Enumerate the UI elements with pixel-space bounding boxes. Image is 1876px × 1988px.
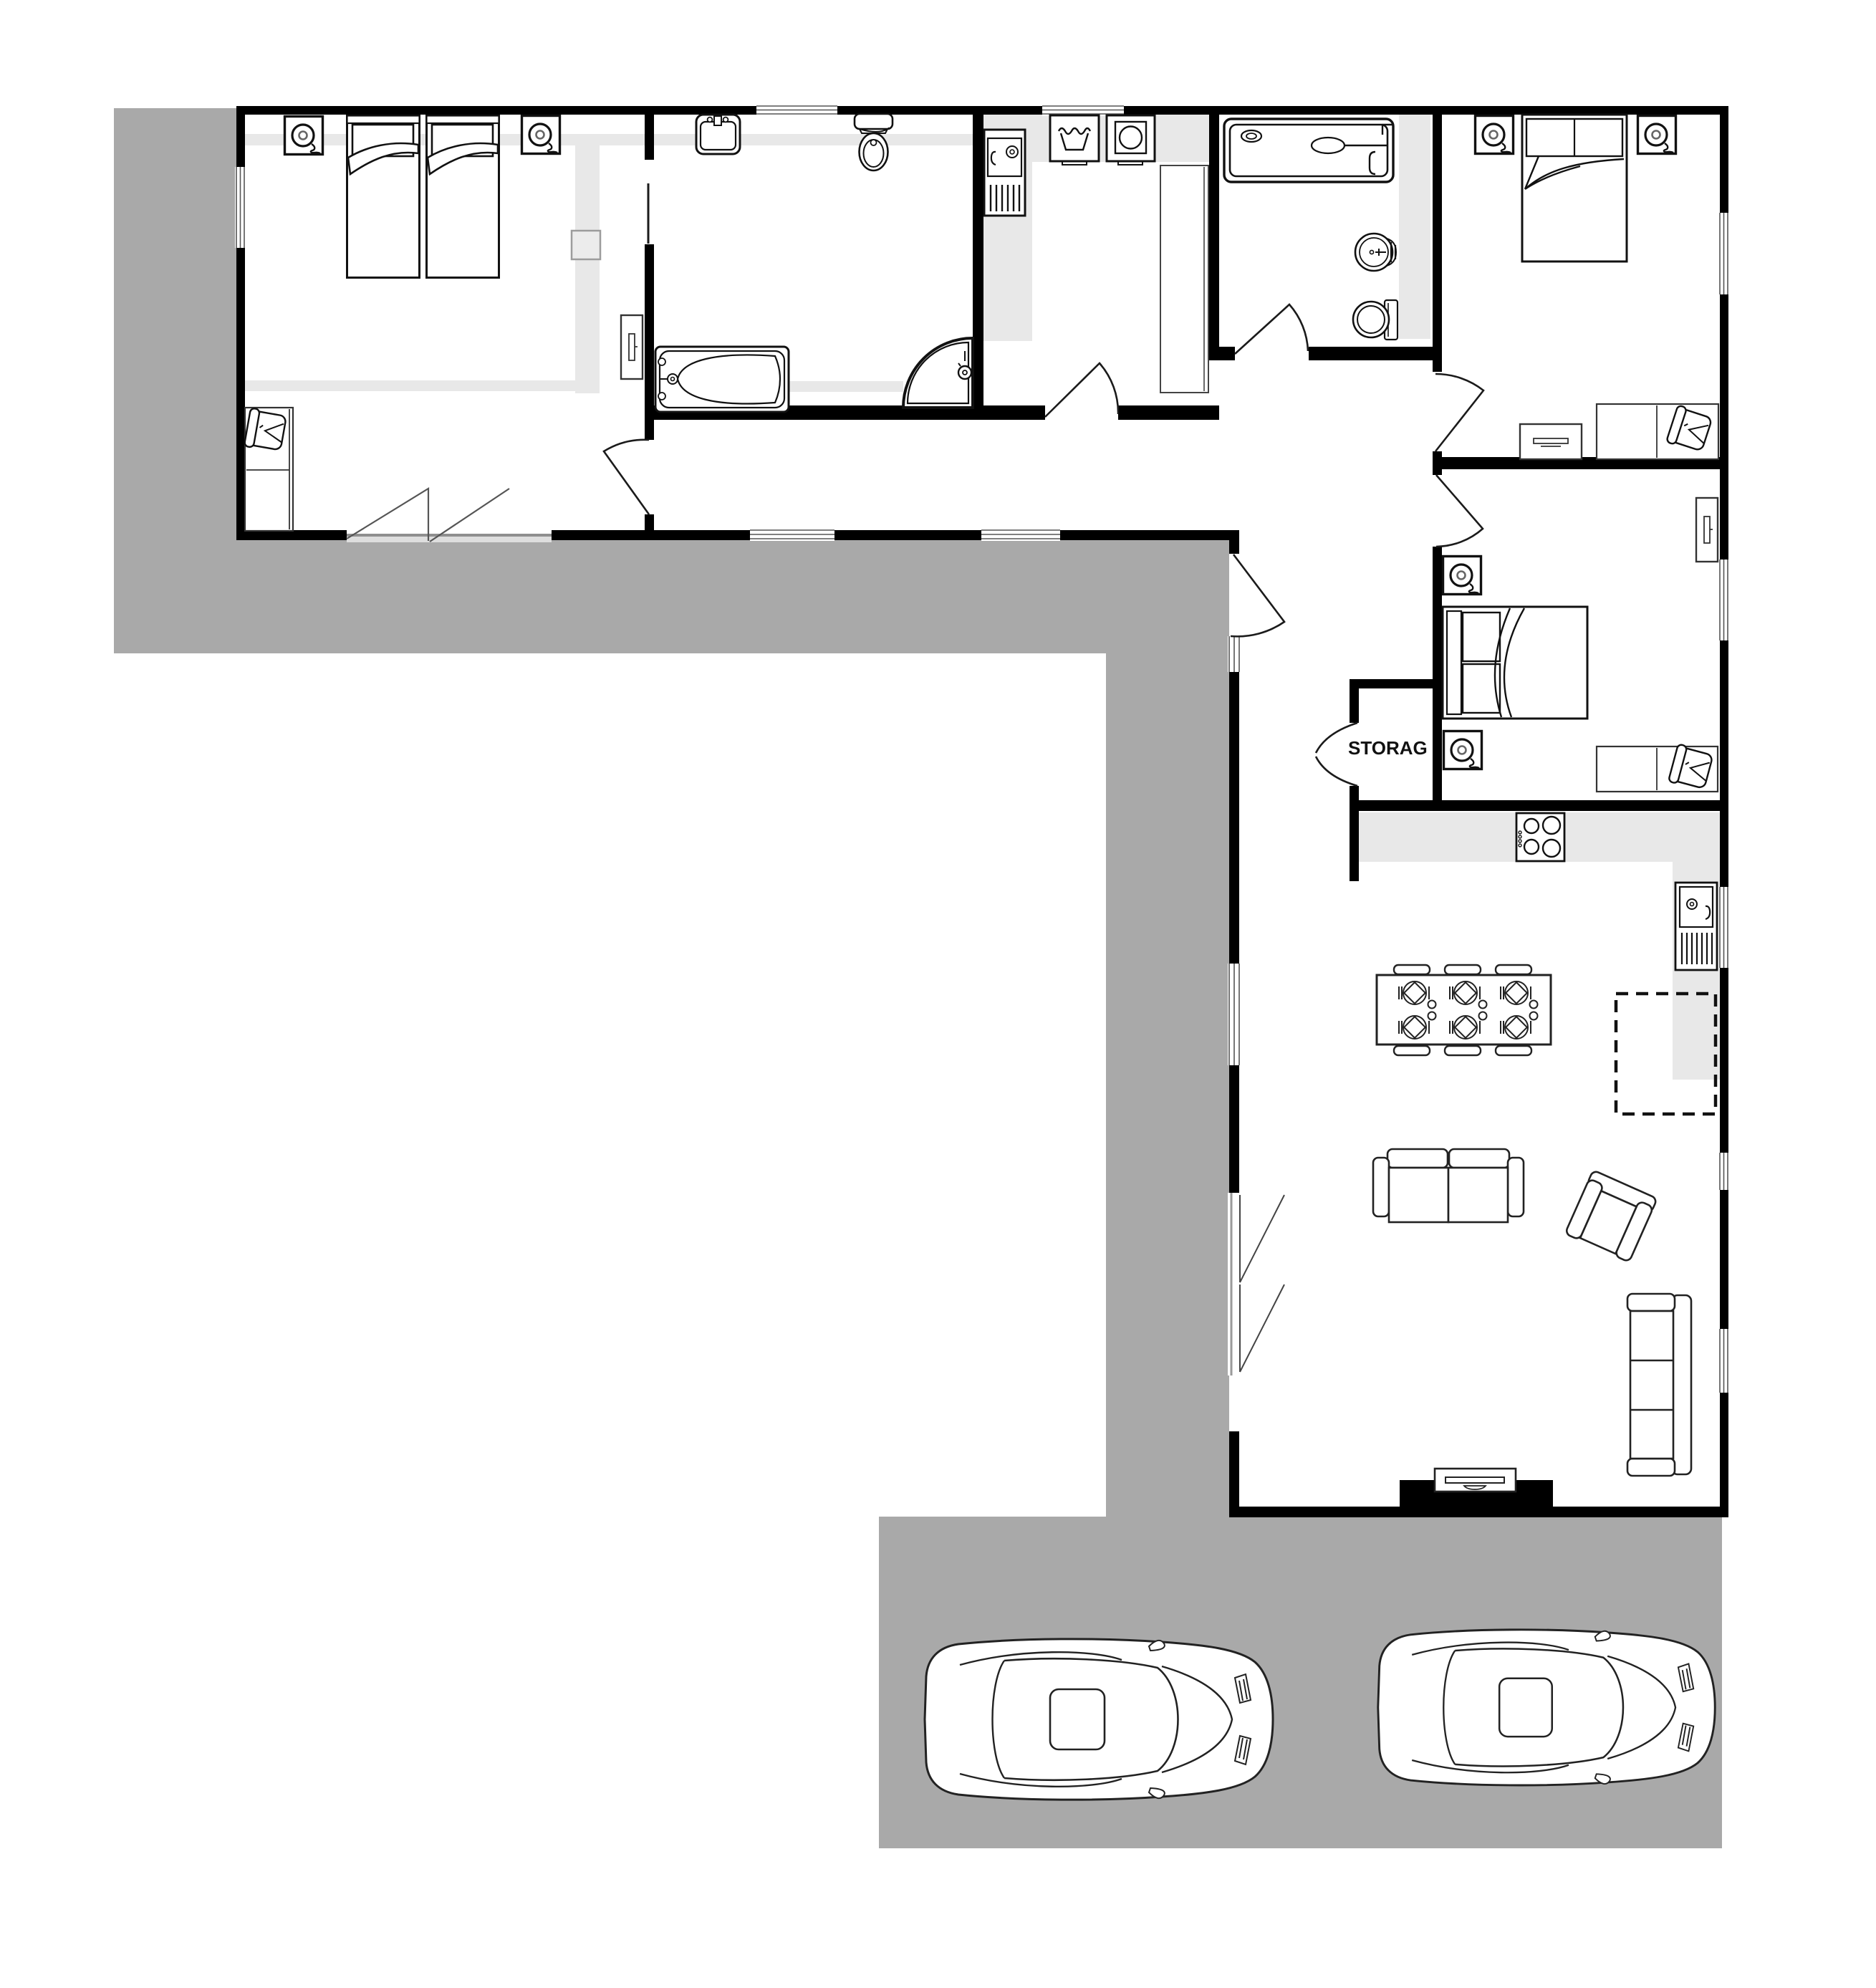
svg-text:STORAG: STORAG [1348, 737, 1428, 759]
